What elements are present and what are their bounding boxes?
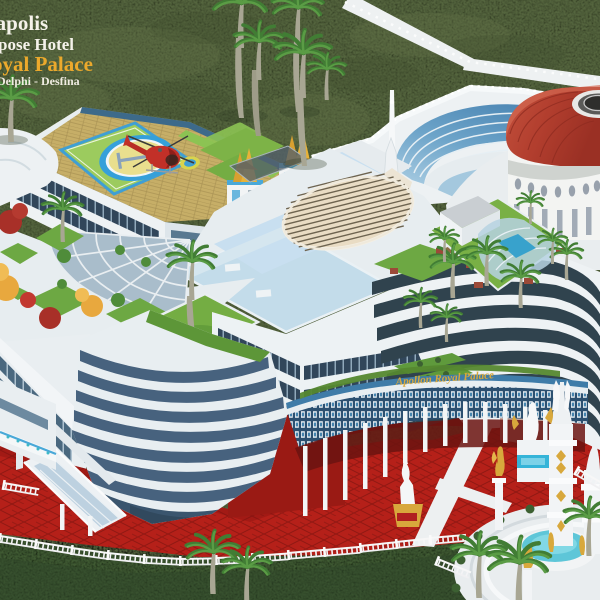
- svg-text:napolis: napolis: [0, 11, 48, 35]
- svg-text:Delphi - Desfina: Delphi - Desfina: [0, 74, 80, 88]
- svg-text:oyal Palace: oyal Palace: [0, 52, 93, 76]
